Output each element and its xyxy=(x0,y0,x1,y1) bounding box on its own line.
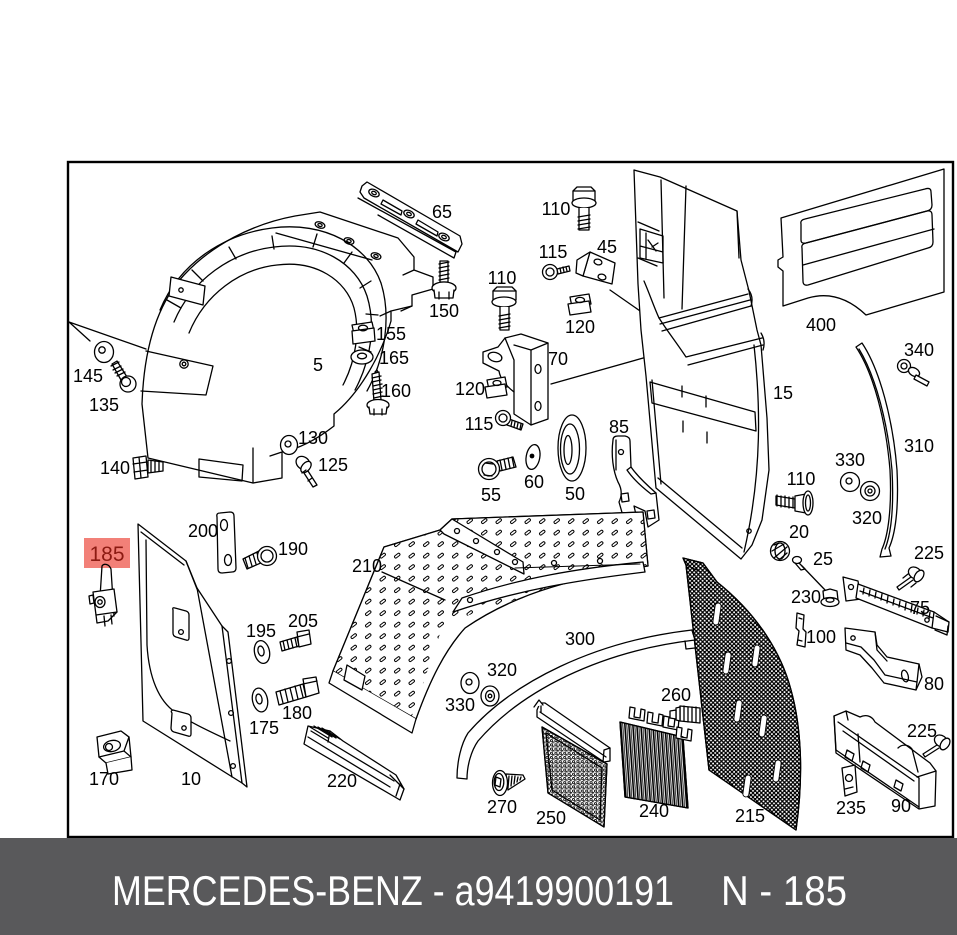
svg-text:150: 150 xyxy=(429,301,459,321)
svg-text:330: 330 xyxy=(445,695,475,715)
svg-text:225: 225 xyxy=(914,543,944,563)
svg-text:330: 330 xyxy=(835,450,865,470)
svg-text:235: 235 xyxy=(836,798,866,818)
svg-text:5: 5 xyxy=(313,355,323,375)
svg-text:45: 45 xyxy=(597,237,617,257)
svg-text:170: 170 xyxy=(89,769,119,789)
svg-text:80: 80 xyxy=(924,674,944,694)
svg-text:135: 135 xyxy=(89,395,119,415)
svg-text:270: 270 xyxy=(487,797,517,817)
svg-text:110: 110 xyxy=(488,268,517,288)
svg-text:340: 340 xyxy=(904,340,934,360)
svg-text:190: 190 xyxy=(278,539,308,559)
svg-text:65: 65 xyxy=(432,202,452,222)
svg-text:260: 260 xyxy=(661,685,691,705)
svg-text:50: 50 xyxy=(565,484,585,504)
svg-text:195: 195 xyxy=(246,621,276,641)
svg-text:60: 60 xyxy=(524,472,544,492)
svg-text:120: 120 xyxy=(565,317,595,337)
svg-text:25: 25 xyxy=(813,549,833,569)
svg-text:MERCEDES-BENZ - a9419900191: MERCEDES-BENZ - a9419900191 xyxy=(112,867,674,914)
svg-text:130: 130 xyxy=(298,428,328,448)
svg-text:215: 215 xyxy=(735,806,765,826)
svg-text:210: 210 xyxy=(352,556,382,576)
svg-text:320: 320 xyxy=(487,660,517,680)
svg-text:115: 115 xyxy=(539,242,568,262)
svg-text:160: 160 xyxy=(381,381,411,401)
svg-text:200: 200 xyxy=(188,521,218,541)
svg-text:115: 115 xyxy=(465,414,494,434)
svg-text:225: 225 xyxy=(907,721,937,741)
svg-text:90: 90 xyxy=(891,796,911,816)
svg-text:250: 250 xyxy=(536,808,566,828)
svg-text:20: 20 xyxy=(789,522,809,542)
svg-text:165: 165 xyxy=(379,348,409,368)
svg-text:75: 75 xyxy=(910,598,930,618)
svg-text:125: 125 xyxy=(318,455,348,475)
svg-text:400: 400 xyxy=(806,315,836,335)
svg-text:155: 155 xyxy=(376,324,406,344)
svg-text:120: 120 xyxy=(455,379,485,399)
svg-text:240: 240 xyxy=(639,801,669,821)
svg-text:110: 110 xyxy=(787,469,816,489)
svg-text:10: 10 xyxy=(181,769,201,789)
svg-text:320: 320 xyxy=(852,508,882,528)
svg-text:180: 180 xyxy=(282,703,312,723)
svg-text:205: 205 xyxy=(288,611,318,631)
svg-text:55: 55 xyxy=(481,485,501,505)
svg-text:N - 185: N - 185 xyxy=(721,867,847,914)
svg-text:110: 110 xyxy=(542,199,571,219)
svg-text:85: 85 xyxy=(609,417,629,437)
svg-text:175: 175 xyxy=(249,718,279,738)
svg-text:310: 310 xyxy=(904,436,934,456)
svg-text:230: 230 xyxy=(791,587,821,607)
svg-text:300: 300 xyxy=(565,629,595,649)
svg-text:15: 15 xyxy=(773,383,793,403)
svg-text:140: 140 xyxy=(100,458,130,478)
svg-text:70: 70 xyxy=(548,349,568,369)
svg-text:185: 185 xyxy=(89,543,124,566)
svg-text:100: 100 xyxy=(806,627,836,647)
svg-text:220: 220 xyxy=(327,771,357,791)
svg-text:145: 145 xyxy=(73,366,103,386)
